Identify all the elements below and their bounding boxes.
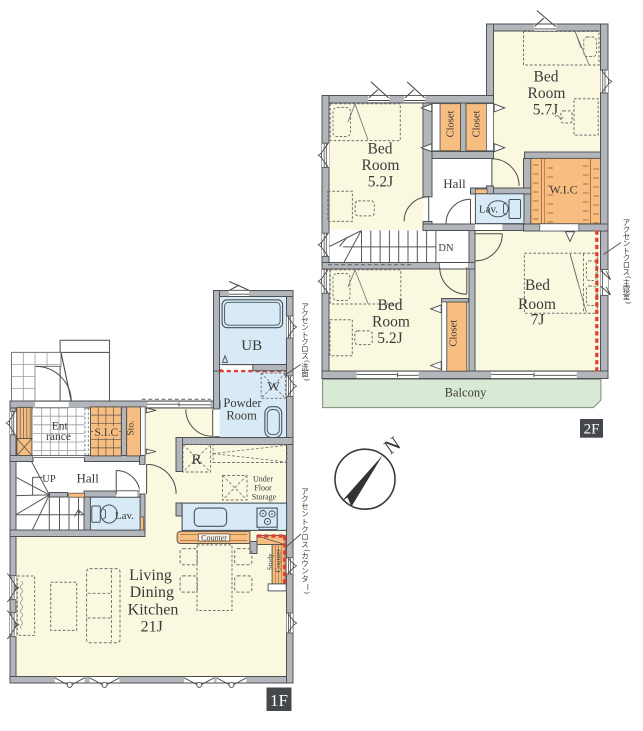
svg-text:Balcony: Balcony xyxy=(445,385,487,399)
svg-text:7J: 7J xyxy=(531,312,545,329)
svg-text:室: 室 xyxy=(623,292,630,301)
svg-text:R: R xyxy=(191,452,201,468)
svg-text:Study: Study xyxy=(267,553,275,570)
svg-text:タ: タ xyxy=(301,574,308,583)
svg-text:Room: Room xyxy=(372,314,410,331)
svg-text:Closet: Closet xyxy=(446,111,457,138)
svg-text:Bed: Bed xyxy=(378,297,403,314)
svg-text:Living: Living xyxy=(129,567,172,584)
svg-text:UP: UP xyxy=(42,474,56,485)
svg-text:5.2J: 5.2J xyxy=(368,174,393,191)
svg-text:Floor: Floor xyxy=(254,484,272,493)
svg-text:Hall: Hall xyxy=(443,176,466,191)
svg-text:Bed: Bed xyxy=(525,277,550,294)
svg-text:面: 面 xyxy=(301,369,308,378)
svg-text:DN: DN xyxy=(438,243,454,254)
svg-text:5.7J: 5.7J xyxy=(533,102,558,119)
svg-text:ー: ー xyxy=(303,583,312,590)
svg-text:21J: 21J xyxy=(141,619,163,636)
svg-text:Room: Room xyxy=(528,85,566,102)
svg-text:UB: UB xyxy=(241,338,262,354)
svg-text:Room: Room xyxy=(362,157,400,174)
svg-text:W: W xyxy=(267,379,280,394)
svg-text:Bed: Bed xyxy=(534,69,559,86)
svg-text:Room: Room xyxy=(518,296,556,313)
svg-text:Under: Under xyxy=(253,475,273,484)
svg-text:Closet: Closet xyxy=(472,111,483,138)
svg-text:Room: Room xyxy=(226,409,257,423)
svg-text:5.2J: 5.2J xyxy=(377,330,402,347)
svg-text:Hall: Hall xyxy=(77,471,100,486)
svg-text:Counter: Counter xyxy=(201,533,227,542)
svg-text:Closet: Closet xyxy=(449,320,460,347)
svg-text:rance: rance xyxy=(46,431,71,443)
svg-text:Sto.: Sto. xyxy=(127,420,137,435)
svg-text:Lav.: Lav. xyxy=(479,204,498,216)
svg-text:Counter: Counter xyxy=(275,549,283,573)
svg-text:Lav.: Lav. xyxy=(115,510,134,522)
svg-text:Storage: Storage xyxy=(252,493,277,502)
svg-text:1F: 1F xyxy=(270,691,288,710)
svg-text:W.I.C: W.I.C xyxy=(549,183,577,197)
svg-text:ス: ス xyxy=(301,540,308,549)
svg-text:Dining: Dining xyxy=(130,584,174,601)
svg-text:ス: ス xyxy=(623,267,630,276)
svg-text:ス: ス xyxy=(301,351,308,360)
svg-text:Bed: Bed xyxy=(368,141,393,158)
svg-text:S.I.C: S.I.C xyxy=(94,427,118,439)
svg-text:Kitchen: Kitchen xyxy=(128,602,179,619)
svg-text:2F: 2F xyxy=(584,422,600,438)
